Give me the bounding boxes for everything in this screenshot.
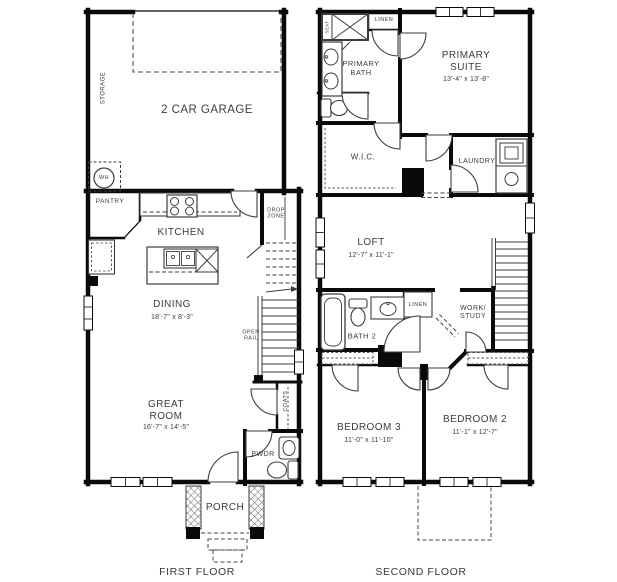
linen-door-arc [372,30,398,56]
window [467,8,494,17]
bathtub-icon [321,294,345,350]
bedroom2-closet-door-arc [484,365,508,389]
porch-label: PORCH [206,502,244,514]
first-floor-stairs [247,197,299,383]
bedroom3-door-arc [398,368,420,390]
closet-strips [322,353,528,365]
wall-post [420,364,428,380]
bath2-label: BATH 2 [348,333,376,342]
drop-zone-label: DROP ZONE [262,208,290,221]
window [376,478,404,487]
powder-label: PWDR [251,451,274,459]
great-room-dims: 16'-7" x 14'-5" [143,424,189,432]
bedroom3-dims: 11'-0" x 11'-10" [344,437,393,445]
wall-post [87,276,98,286]
linen2-label: LINEN [409,302,427,308]
floor-plan-drawing [0,0,617,582]
window [343,478,371,487]
garage-label: 2 CAR GARAGE [161,104,253,118]
loft-label: LOFT [357,237,384,249]
bedroom2-dims: 11'-1" x 12'-7" [452,429,498,437]
loft-dims: 12'-7" x 11'-1" [348,252,394,260]
powder-toilet-icon [268,461,299,479]
wall-chase [402,168,424,196]
second-floor-stairs [492,238,528,340]
window [440,478,468,487]
laundry-label: LAUNDRY [459,158,495,166]
coats-label: COATS [283,391,289,412]
toilet-room-door-arc [342,93,368,119]
island-sink-icon [164,249,196,268]
bath2-sink-icon [371,297,404,319]
wic-door-arc [374,123,400,149]
seat-label: SEAT [324,20,329,33]
garage-door-dashed-outline [133,13,281,72]
pantry-label: PANTRY [96,198,124,206]
floor-plan: STORAGE 2 CAR GARAGE WH PANTRY KITCHEN D… [0,0,617,582]
porch [186,486,264,562]
suite-bath-door-arc [400,33,426,59]
porch-post [186,527,200,539]
window [295,350,304,374]
bedroom2-door-arc [428,368,450,390]
window [84,296,93,330]
porch-column [249,486,264,529]
window [316,250,325,278]
stove-icon [167,195,197,217]
refrigerator-icon [89,240,115,274]
window [436,8,463,17]
bath2-door-arc [384,316,420,352]
dining-dims: 18'-7" x 8'-3" [151,314,193,322]
wic-label: W.I.C. [351,152,375,161]
bedroom3-label: BEDROOM 3 [337,422,401,434]
primary-suite-label: PRIMARY SUITE [436,50,496,74]
powder-sink-icon [279,437,299,459]
porch-column [186,486,201,529]
second-floor-caption: SECOND FLOOR [375,566,466,578]
front-door-arc [208,452,238,482]
window [526,203,535,233]
washer-dryer-icon [496,139,527,193]
porch-post [250,527,264,539]
work-study-label: WORK/ STUDY [456,305,490,322]
primary-suite-dims: 13'-4" x 13'-8" [443,76,489,84]
coats-door-arc [251,389,277,415]
laundry-door-arc [451,165,478,192]
second-floor-walls [318,10,532,484]
dining-label: DINING [153,299,191,311]
suite-entry-door-arc [426,135,452,161]
water-heater-label: WH [99,175,109,181]
primary-bath-label: PRIMARY BATH [336,60,386,78]
window [316,218,325,247]
linen-label: LINEN [375,17,393,23]
window [473,478,501,487]
porch-steps [208,539,247,562]
work-study-door-arc [466,332,486,352]
porch-roof-dashed-outline [418,486,491,540]
bedroom3-closet-door-arc [332,365,358,391]
great-room-label: GREAT ROOM [138,399,194,423]
bedroom2-label: BEDROOM 2 [443,414,507,426]
bath2-toilet-icon [349,299,367,326]
window [111,478,140,487]
kitchen-label: KITCHEN [157,227,204,239]
window [143,478,172,487]
first-floor-caption: FIRST FLOOR [159,566,235,578]
open-rail-label: OPEN RAIL [238,330,264,343]
storage-label: STORAGE [100,72,107,104]
